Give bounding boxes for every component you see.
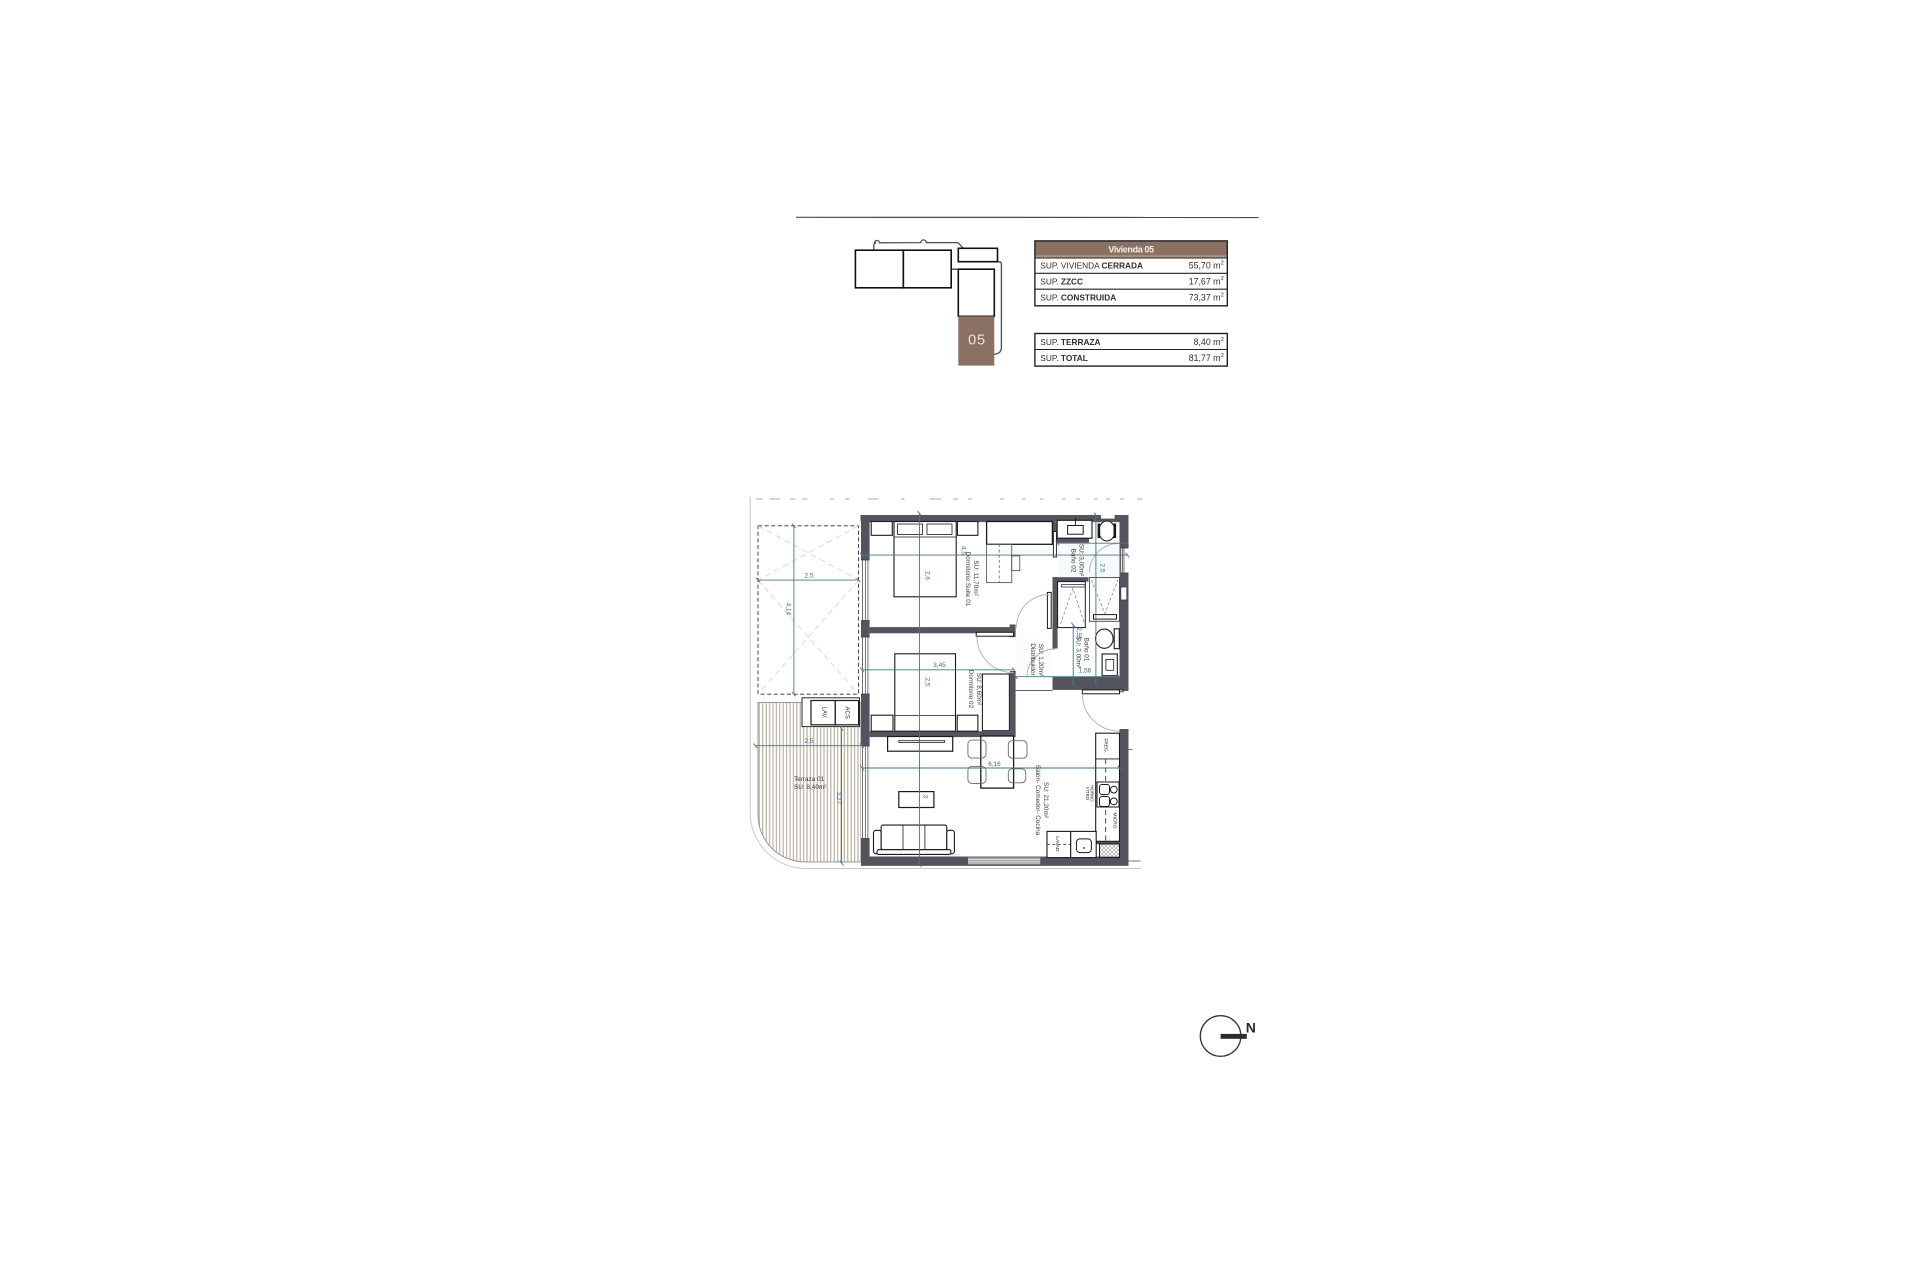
svg-text:SUP. VIVIENDA CERRADA: SUP. VIVIENDA CERRADA bbox=[1040, 261, 1143, 271]
svg-text:2,5: 2,5 bbox=[805, 738, 814, 745]
svg-text:17,67 m: 17,67 m bbox=[1189, 276, 1221, 286]
svg-text:SU: 8,40m²: SU: 8,40m² bbox=[794, 784, 826, 791]
svg-text:VITRO: VITRO bbox=[1085, 787, 1090, 801]
svg-text:SUP. TERRAZA: SUP. TERRAZA bbox=[1040, 337, 1100, 347]
svg-text:6,16: 6,16 bbox=[988, 761, 1001, 768]
svg-text:SU: 21,20m²: SU: 21,20m² bbox=[1042, 782, 1049, 818]
svg-text:2,5: 2,5 bbox=[1099, 564, 1106, 573]
svg-text:55,70 m: 55,70 m bbox=[1189, 261, 1221, 271]
svg-text:Dormitorio 02: Dormitorio 02 bbox=[967, 670, 974, 709]
svg-text:HORNO: HORNO bbox=[1090, 785, 1095, 802]
svg-text:05: 05 bbox=[968, 333, 986, 349]
svg-text:Distribuidor: Distribuidor bbox=[1029, 643, 1036, 676]
svg-text:SU: 1,20m²: SU: 1,20m² bbox=[1037, 644, 1044, 676]
svg-text:MICRO: MICRO bbox=[1111, 813, 1117, 829]
svg-text:SUP. TOTAL: SUP. TOTAL bbox=[1040, 353, 1088, 363]
svg-text:2: 2 bbox=[1221, 353, 1224, 359]
svg-text:2,6: 2,6 bbox=[923, 571, 930, 580]
svg-text:SU: 11,70m²: SU: 11,70m² bbox=[972, 560, 979, 595]
svg-text:SU: 3,00m²: SU: 3,00m² bbox=[1077, 544, 1084, 576]
svg-text:3,27: 3,27 bbox=[835, 792, 842, 805]
svg-text:Terraza 01: Terraza 01 bbox=[794, 776, 825, 783]
svg-text:LAVAD.: LAVAD. bbox=[1054, 836, 1060, 852]
svg-text:ACS: ACS bbox=[844, 706, 850, 718]
svg-text:2: 2 bbox=[1221, 260, 1224, 266]
svg-text:N: N bbox=[1246, 1019, 1256, 1035]
svg-text:4,14: 4,14 bbox=[785, 603, 792, 616]
svg-text:Baño 02: Baño 02 bbox=[1069, 549, 1076, 573]
svg-text:SU: 3,00m²: SU: 3,00m² bbox=[1074, 636, 1081, 668]
svg-text:8,40 m: 8,40 m bbox=[1194, 337, 1221, 347]
svg-text:3: 3 bbox=[922, 795, 929, 799]
svg-text:2: 2 bbox=[1221, 292, 1224, 298]
svg-text:FREG.: FREG. bbox=[1103, 738, 1109, 753]
svg-text:2,5: 2,5 bbox=[923, 678, 930, 687]
svg-text:Vivienda 05: Vivienda 05 bbox=[1108, 245, 1154, 255]
svg-text:Salón- Comedor- Cocina: Salón- Comedor- Cocina bbox=[1034, 765, 1041, 836]
svg-text:Dormitorio Suite 01: Dormitorio Suite 01 bbox=[964, 552, 971, 607]
svg-text:LAV.: LAV. bbox=[820, 707, 826, 719]
svg-text:SUP. CONSTRUIDA: SUP. CONSTRUIDA bbox=[1040, 293, 1116, 303]
svg-text:SU: 8,60m²: SU: 8,60m² bbox=[975, 673, 982, 705]
svg-text:SUP. ZZCC: SUP. ZZCC bbox=[1040, 276, 1083, 286]
svg-text:73,37 m: 73,37 m bbox=[1189, 293, 1221, 303]
svg-text:2: 2 bbox=[1221, 276, 1224, 282]
svg-text:1,56: 1,56 bbox=[1079, 667, 1092, 674]
svg-text:2: 2 bbox=[1221, 337, 1224, 343]
svg-text:3,45: 3,45 bbox=[933, 662, 946, 669]
svg-text:2,5: 2,5 bbox=[805, 573, 814, 580]
svg-text:81,77 m: 81,77 m bbox=[1189, 353, 1221, 363]
svg-text:Baño 01: Baño 01 bbox=[1082, 638, 1089, 662]
